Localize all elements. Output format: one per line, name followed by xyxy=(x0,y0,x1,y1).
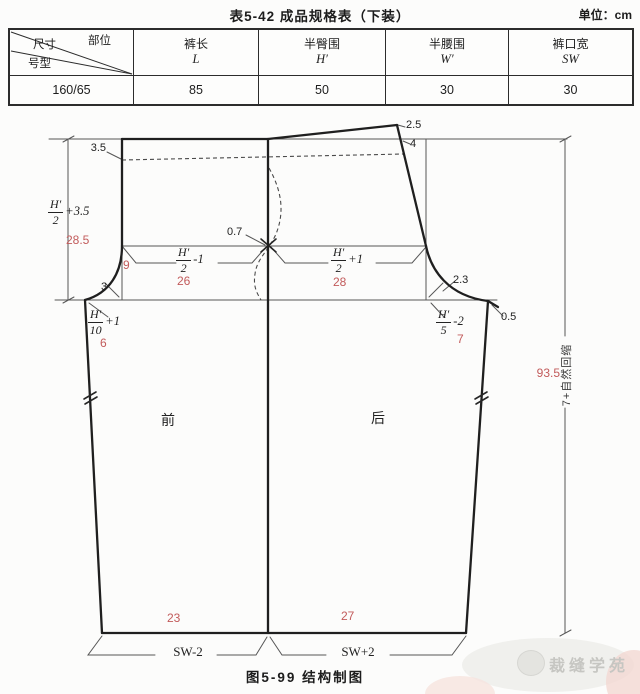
value-half-hip: 50 xyxy=(258,75,385,104)
dim-tip-raise: 0.5 xyxy=(501,311,516,323)
corner-size-label: 尺寸 xyxy=(33,39,56,52)
piece-back-label: 后 xyxy=(371,411,386,426)
fraction: H′2 xyxy=(176,246,191,274)
col-header-pant-length: 裤长 L xyxy=(133,30,258,75)
corner-part-label: 部位 xyxy=(88,35,111,48)
figure-caption: 图5-99 结构制图 xyxy=(165,666,445,686)
red-back-hip: 28 xyxy=(333,276,346,289)
fraction: H′10 xyxy=(88,308,103,336)
watermark-text: 裁缝学苑 xyxy=(549,652,629,676)
table-title: 表5-42 成品规格表（下装） xyxy=(10,5,630,25)
watermark-logo-icon xyxy=(517,650,545,676)
red-back-hem: 27 xyxy=(341,610,354,623)
dim-side-offset: 0.7 xyxy=(227,226,242,238)
formula-front-hip: H′2-1 xyxy=(176,246,204,274)
corner-cell: 部位 尺寸 号型 xyxy=(10,30,133,75)
dim-back-bisector: 2.3 xyxy=(453,274,468,286)
fraction: H′5 xyxy=(436,308,451,336)
red-back-ext: 7 xyxy=(457,333,464,346)
red-front-hip: 26 xyxy=(177,275,190,288)
dim-front-waist-drop: 3.5 xyxy=(84,142,106,154)
pattern-draft-svg xyxy=(0,105,640,694)
formula-front-ext: H′10+1 xyxy=(88,308,120,336)
piece-front-label: 前 xyxy=(161,413,176,428)
red-front-ext: 6 xyxy=(100,337,107,350)
unit-label: 单位：cm xyxy=(579,6,632,23)
value-half-waist: 30 xyxy=(385,75,508,104)
col-header-half-waist: 半腰围 W′ xyxy=(385,30,508,75)
formula-rise: H′2+3.5 xyxy=(48,198,89,226)
dim-back-waist-drop: 4 xyxy=(410,138,416,150)
side-length-note: 7+自然回缩 xyxy=(558,327,574,423)
col-header-half-hip: 半臀围 H′ xyxy=(258,30,385,75)
value-hem-width: 30 xyxy=(508,75,632,104)
dim-back-rise-up: 2.5 xyxy=(406,119,421,131)
value-pant-length: 85 xyxy=(133,75,258,104)
red-front-hem: 23 xyxy=(167,612,180,625)
dim-front-bisector: 3 xyxy=(101,281,107,293)
red-rise: 28.5 xyxy=(66,234,89,247)
fraction: H′2 xyxy=(331,246,346,274)
red-front-fold: 9 xyxy=(123,259,130,272)
hem-formula-front: SW-2 xyxy=(158,645,218,659)
page: 表5-42 成品规格表（下装） 单位：cm 部位 尺寸 号型 裤长 L 半臀围 … xyxy=(0,0,640,694)
hem-formula-back: SW+2 xyxy=(328,645,388,659)
formula-back-hip: H′2+1 xyxy=(331,246,363,274)
row-model: 160/65 xyxy=(10,75,133,104)
col-header-hem-width: 裤口宽 SW xyxy=(508,30,632,75)
spec-table: 部位 尺寸 号型 裤长 L 半臀围 H′ 半腰围 W′ 裤口宽 SW 160/6… xyxy=(8,28,634,106)
red-side-length: 93.5 xyxy=(530,367,560,380)
corner-model-label: 号型 xyxy=(28,58,51,71)
fraction: H′2 xyxy=(48,198,63,226)
